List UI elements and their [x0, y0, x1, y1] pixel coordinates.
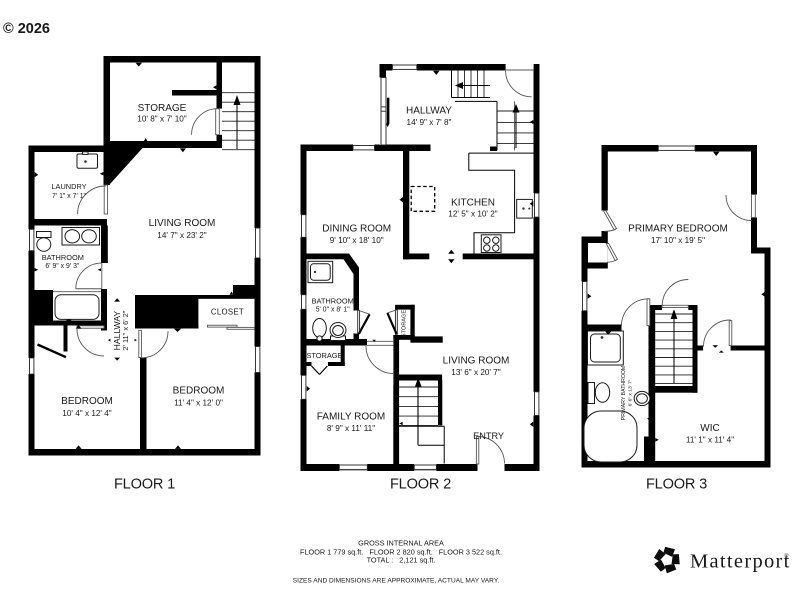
svg-text:CLOSET: CLOSET [211, 308, 244, 317]
svg-text:8' 9" x 11' 11": 8' 9" x 11' 11" [327, 424, 375, 433]
svg-text:FAMILY ROOM: FAMILY ROOM [317, 412, 386, 423]
svg-text:BEDROOM: BEDROOM [173, 386, 225, 397]
svg-text:GROSS INTERNAL AREA: GROSS INTERNAL AREA [358, 538, 444, 547]
svg-text:LIVING ROOM: LIVING ROOM [149, 218, 216, 229]
svg-text:2' 11" x 6' 2": 2' 11" x 6' 2" [121, 310, 130, 350]
svg-text:14' 7" x 23' 2": 14' 7" x 23' 2" [157, 231, 207, 240]
svg-text:BATHROOM: BATHROOM [312, 297, 354, 306]
svg-text:12' 5" x 10' 2": 12' 5" x 10' 2" [448, 210, 498, 219]
svg-text:14' 9" x 7' 8": 14' 9" x 7' 8" [407, 118, 452, 127]
svg-text:HALLWAY: HALLWAY [406, 106, 452, 117]
svg-text:13' 6" x 20' 7": 13' 6" x 20' 7" [451, 368, 501, 377]
svg-text:DINING ROOM: DINING ROOM [322, 223, 391, 234]
svg-text:STORAGE: STORAGE [306, 351, 342, 360]
svg-text:FLOOR 1: FLOOR 1 [114, 477, 175, 493]
svg-text:7' 1" x 7' 1": 7' 1" x 7' 1" [52, 193, 87, 200]
svg-text:KITCHEN: KITCHEN [451, 197, 495, 208]
svg-text:10' 4" x 12' 4": 10' 4" x 12' 4" [62, 409, 112, 418]
svg-text:BEDROOM: BEDROOM [61, 396, 113, 407]
svg-text:PRIMARY BEDROOM: PRIMARY BEDROOM [628, 223, 728, 234]
svg-text:© 2026: © 2026 [3, 21, 50, 37]
svg-text:17' 10" x 19' 5": 17' 10" x 19' 5" [651, 236, 705, 245]
svg-text:FLOOR 2: FLOOR 2 [390, 477, 451, 493]
svg-text:®: ® [784, 553, 789, 560]
svg-text:TOTAL : 2,121 sq.ft.: TOTAL : 2,121 sq.ft. [367, 556, 436, 565]
svg-text:6' 6" x 13' 7": 6' 6" x 13' 7" [628, 379, 634, 406]
svg-text:PRIMARY BATHROOM: PRIMARY BATHROOM [621, 366, 627, 420]
svg-text:FLOOR 3: FLOOR 3 [646, 477, 707, 493]
svg-text:WIC: WIC [700, 423, 719, 434]
svg-text:6' 9" x 9' 3": 6' 9" x 9' 3" [45, 263, 80, 270]
svg-text:STORAGE: STORAGE [402, 310, 408, 338]
svg-text:5' 0" x 8' 1": 5' 0" x 8' 1" [316, 307, 351, 314]
svg-text:BATHROOM: BATHROOM [42, 253, 84, 262]
svg-text:LIVING ROOM: LIVING ROOM [443, 356, 510, 367]
svg-text:11' 1" x 11' 4": 11' 1" x 11' 4" [686, 436, 734, 445]
svg-text:SIZES AND DIMENSIONS ARE APPRO: SIZES AND DIMENSIONS ARE APPROXIMATE, AC… [293, 578, 500, 585]
svg-text:LAUNDRY: LAUNDRY [51, 182, 86, 191]
svg-text:11' 4" x 12' 0": 11' 4" x 12' 0" [174, 398, 223, 407]
svg-text:STORAGE: STORAGE [138, 103, 187, 114]
svg-text:Matterport: Matterport [690, 551, 791, 573]
svg-text:9' 10" x 18' 10": 9' 10" x 18' 10" [330, 236, 384, 245]
svg-text:ENTRY: ENTRY [473, 431, 504, 441]
svg-text:10' 8" x 7' 10": 10' 8" x 7' 10" [137, 114, 187, 123]
